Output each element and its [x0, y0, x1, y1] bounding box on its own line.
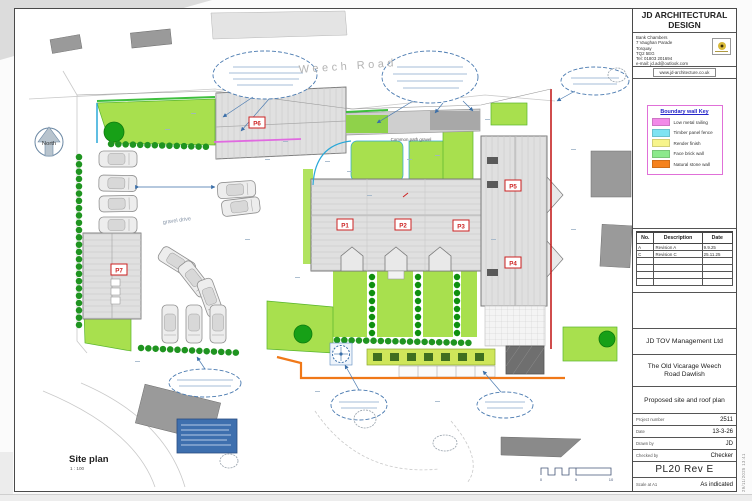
revision-row-empty: [637, 258, 733, 265]
field-checked-by: Checked by Checker: [633, 450, 736, 462]
legend-item: Low metal railing: [652, 118, 718, 126]
revision-table: No. Description Date A Revision A 9.9.25…: [636, 231, 733, 286]
building-p7: [83, 233, 141, 319]
scale-bar: 0 5 10: [540, 468, 614, 482]
plot-label-p1: P1: [337, 219, 353, 230]
screenshot-root: { "drawing": { "road_label": "Weech Road…: [0, 0, 752, 500]
bin-store: [506, 346, 544, 374]
view-title-block: Site plan 1 : 100: [69, 454, 109, 471]
svg-text:0: 0: [540, 477, 543, 482]
title-block-spacer: [633, 293, 736, 329]
svg-text:P5: P5: [509, 184, 517, 191]
firm-logo: [712, 38, 731, 55]
svg-text:P1: P1: [341, 223, 349, 230]
plot-label-p2: P2: [395, 219, 411, 230]
view-scale: 1 : 100: [70, 466, 84, 471]
revision-row-empty: [637, 272, 733, 279]
firm-name: JD ARCHITECTURAL DESIGN: [633, 9, 736, 33]
legend-item: Timber panel fence: [652, 129, 718, 137]
revision-row: A Revision A 9.9.25: [637, 244, 733, 251]
project-name: The Old Vicarage Weech Road Dawlish: [633, 355, 736, 387]
revision-table-section: No. Description Date A Revision A 9.9.25…: [633, 229, 736, 293]
site-plan-drawing: North P1 P2 P3 P4 P5 P6 P7 Weech Road gr…: [15, 9, 633, 491]
legend-swatch: [652, 129, 670, 137]
sheet-title: Proposed site and roof plan: [633, 387, 736, 414]
common-path-label: Common path gravel: [391, 137, 432, 142]
cycle-stands: [367, 349, 495, 365]
legend-swatch: [652, 160, 670, 168]
plot-label-p7: P7: [111, 264, 127, 275]
legend-item: Render finish: [652, 139, 718, 147]
service-feature: [330, 343, 352, 365]
north-label: North: [42, 141, 56, 147]
legend-swatch: [652, 139, 670, 147]
field-project-number: Project number 2511: [633, 414, 736, 426]
common-path: [346, 109, 480, 135]
parking-bays: [399, 366, 495, 377]
note-box: [177, 419, 237, 453]
firm-website: www.jd-architecture.co.uk: [633, 67, 736, 79]
legend-item: Face brick wall: [652, 150, 718, 158]
plot-label-p4: P4: [505, 257, 521, 268]
client-name: JD TOV Management Ltd: [633, 329, 736, 355]
plot-label-p3: P3: [453, 220, 469, 231]
boundary-key-legend: Boundary wall Key Low metal railing Timb…: [647, 105, 723, 175]
firm-name-line2: DESIGN: [633, 21, 736, 31]
north-arrow: North: [35, 127, 63, 156]
firm-address: Bank Chambers 7 Vaughan Parade Torquay T…: [633, 33, 736, 67]
svg-text:P3: P3: [457, 224, 465, 231]
svg-text:P6: P6: [253, 121, 261, 128]
revision-row-empty: [637, 279, 733, 286]
drawing-sheet: North P1 P2 P3 P4 P5 P6 P7 Weech Road gr…: [14, 8, 737, 492]
svg-text:5: 5: [575, 477, 578, 482]
field-scale: Scale at A1 As indicated: [633, 478, 736, 491]
view-title: Site plan: [69, 454, 109, 465]
field-drawn-by: Drawn by JD: [633, 438, 736, 450]
legend-item: Natural stone wall: [652, 160, 718, 168]
svg-text:P7: P7: [115, 268, 123, 275]
legend-swatch: [652, 150, 670, 158]
gravel-drive-label: gravel drive: [162, 216, 191, 226]
revision-row: C Revision C 25.11.25: [637, 251, 733, 258]
legend-swatch: [652, 118, 670, 126]
plot-label-p6: P6: [249, 117, 265, 128]
revision-row-empty: [637, 265, 733, 272]
plot-label-p5: P5: [505, 180, 521, 191]
svg-text:10: 10: [609, 477, 614, 482]
legend-title: Boundary wall Key: [652, 109, 718, 115]
sheet-number: PL20 Rev E: [633, 462, 736, 478]
field-date: Date 13-3-26: [633, 426, 736, 438]
boundary-key-section: Boundary wall Key Low metal railing Timb…: [633, 79, 736, 229]
plot-stamp: 29/11/2025 13:41: [741, 388, 750, 492]
svg-text:P4: P4: [509, 261, 517, 268]
scan-artifact-left: [0, 452, 13, 494]
title-block: JD ARCHITECTURAL DESIGN Bank Chambers 7 …: [632, 9, 736, 491]
svg-text:P2: P2: [399, 223, 407, 230]
